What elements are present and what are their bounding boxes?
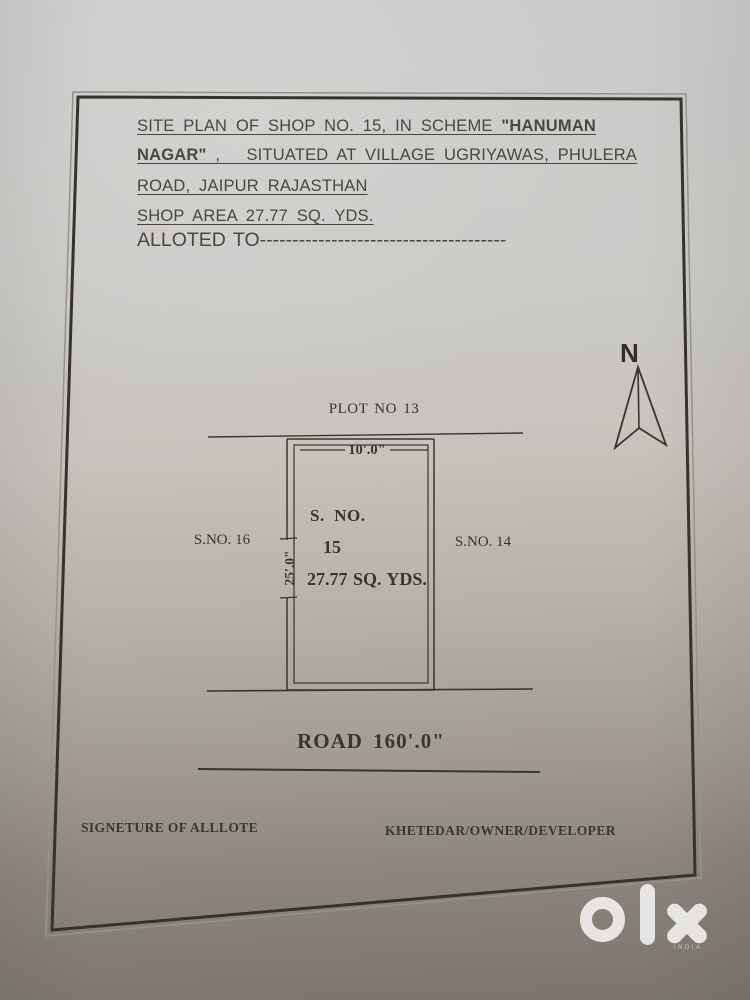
olx-country-label: INDIA xyxy=(663,944,713,951)
title-line-2-text: , SITUATED AT VILLAGE UGRIYAWAS, PHULERA xyxy=(207,146,638,164)
survey-number-value: 15 xyxy=(323,537,341,558)
site-plan-photo: SITE PLAN OF SHOP NO. 15, IN SCHEME "HAN… xyxy=(0,0,750,1000)
title-line-3: ROAD, JAIPUR RAJASTHAN xyxy=(137,177,587,196)
title-line-1-text: SITE PLAN OF SHOP NO. 15, IN SCHEME xyxy=(137,117,501,135)
shop-area-text: SHOP AREA 27.77 SQ. YDS. xyxy=(137,207,374,225)
plot-height-dimension: 25'.0" xyxy=(282,551,298,586)
title-line-1-scheme-name: "HANUMAN xyxy=(501,117,596,135)
plot-area-value: 27.77 SQ. YDS. xyxy=(307,569,427,590)
neighbor-sno-14-label: S.NO. 14 xyxy=(455,534,511,551)
allotted-to-line: ALLOTED TO------------------------------… xyxy=(137,229,506,252)
allotted-to-label: ALLOTED TO xyxy=(137,229,260,251)
road-label: ROAD 160'.0" xyxy=(297,729,445,754)
title-line-3-text: ROAD, JAIPUR RAJASTHAN xyxy=(137,177,368,195)
north-arrow-icon xyxy=(615,367,666,448)
allotted-to-blank: -------------------------------------- xyxy=(260,229,507,251)
road-line-bottom xyxy=(198,769,540,772)
neighbor-plot-13-label: PLOT NO 13 xyxy=(329,401,419,418)
signature-owner-label: KHETEDAR/OWNER/DEVELOPER xyxy=(385,823,616,839)
olx-logo-l-icon xyxy=(640,884,655,945)
survey-number-label: S. NO. xyxy=(310,506,365,526)
title-line-1: SITE PLAN OF SHOP NO. 15, IN SCHEME "HAN… xyxy=(137,117,587,136)
olx-logo-x-icon xyxy=(662,899,712,949)
road-line-top xyxy=(207,689,533,691)
neighbor-sno-16-label: S.NO. 16 xyxy=(194,532,250,549)
title-line-2-scheme-name: NAGAR" xyxy=(137,146,207,164)
plot-inner-outline xyxy=(294,445,428,683)
north-boundary-line xyxy=(208,433,523,437)
signature-allottee-label: SIGNETURE OF ALLLOTE xyxy=(81,820,258,836)
plot-width-dimension: 10'.0" xyxy=(348,442,385,459)
olx-logo-o-icon xyxy=(580,897,625,942)
north-label: N xyxy=(620,338,640,369)
shop-area-line: SHOP AREA 27.77 SQ. YDS. xyxy=(137,207,587,226)
olx-watermark: INDIA xyxy=(575,880,735,965)
title-line-2: NAGAR" , SITUATED AT VILLAGE UGRIYAWAS, … xyxy=(137,146,587,165)
